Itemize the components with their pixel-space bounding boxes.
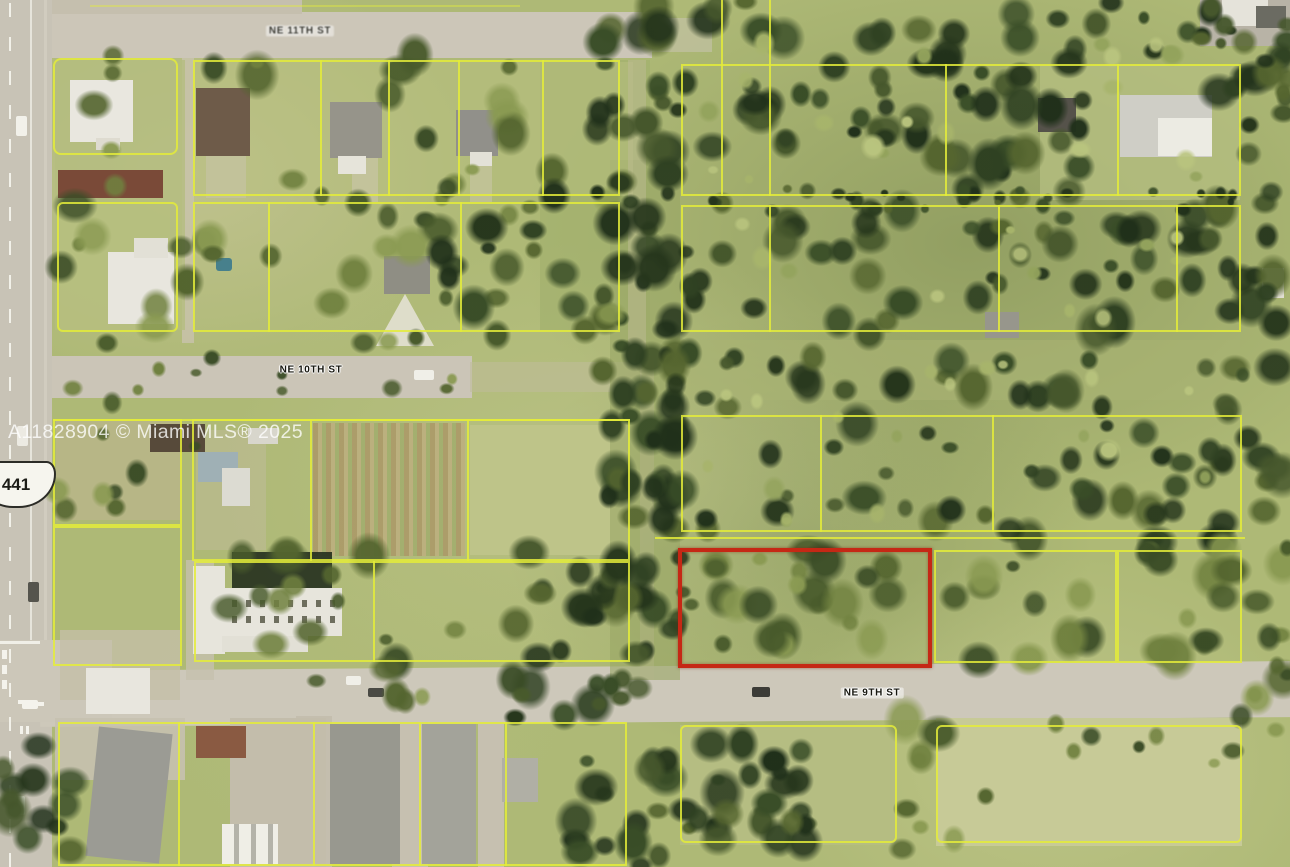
road-marking (2, 680, 7, 689)
street-label-ne-9th-st: NE 9TH ST (841, 688, 904, 699)
road-marking (2, 665, 7, 674)
road-marking (30, 0, 32, 640)
parcel-line (992, 415, 994, 532)
tree-blob (609, 689, 634, 707)
parcel-line (820, 415, 822, 532)
tree-blob (752, 30, 775, 57)
parcel-outline (1117, 550, 1242, 663)
vehicle (16, 116, 27, 136)
tree-blob (95, 332, 119, 353)
tree-blob (944, 376, 957, 392)
tree-blob (901, 14, 937, 45)
vehicle (346, 676, 361, 685)
tree-blob (438, 382, 455, 395)
tree-blob (997, 359, 1009, 370)
tree-blob (644, 429, 665, 451)
road-marking (2, 650, 7, 659)
road-stub-top (52, 0, 302, 14)
vehicle (414, 370, 434, 380)
parcel-line (1117, 64, 1119, 196)
vehicle (22, 700, 38, 709)
tree-blob (101, 391, 122, 415)
parcel-line (373, 561, 375, 662)
parcel-line (419, 722, 421, 866)
tree-blob (1084, 369, 1101, 389)
parcel-outline (681, 205, 1241, 332)
tree-blob (590, 696, 608, 712)
parcel-line (467, 419, 469, 561)
parcel-outline (681, 64, 1241, 196)
parcel-outline (936, 725, 1242, 843)
parcel-line (388, 60, 390, 196)
tree-blob (1266, 721, 1286, 738)
tree-blob (1247, 496, 1282, 526)
tree-blob (906, 738, 937, 774)
parcel-line (310, 419, 312, 561)
tree-blob (997, 0, 1035, 33)
tree-blob (1082, 8, 1111, 40)
tree-blob (1184, 385, 1195, 397)
parcel-outline (680, 725, 897, 843)
tree-blob (510, 686, 533, 704)
road-ne-11th-st (52, 12, 652, 58)
tree-blob (1259, 181, 1284, 203)
parcel-outline (193, 60, 620, 196)
tree-blob (20, 732, 58, 760)
tree-blob (377, 331, 400, 350)
tree-blob (878, 365, 916, 405)
tree-blob (1190, 30, 1212, 48)
tree-blob (349, 331, 378, 355)
tree-blob (1196, 357, 1217, 378)
tree-blob (276, 385, 289, 396)
tree-blob (1253, 348, 1290, 387)
tree-blob (1079, 350, 1099, 371)
tree-blob (911, 819, 929, 835)
vehicle (752, 687, 770, 697)
tree-blob (733, 0, 758, 11)
tree-blob (1045, 9, 1070, 29)
parcel-line (505, 722, 507, 866)
parcel-line (313, 722, 315, 866)
parcel-outline (58, 722, 627, 866)
parcel-line (542, 60, 544, 196)
tree-blob (924, 364, 939, 381)
tree-blob (638, 6, 680, 49)
tree-blob (1230, 28, 1258, 56)
parcel-line (458, 60, 460, 196)
tree-blob (582, 22, 624, 62)
tree-blob (1007, 379, 1033, 411)
parcel-outline (53, 58, 178, 155)
road-marking (44, 0, 47, 640)
tree-blob (750, 393, 764, 411)
parcel-line (769, 205, 771, 332)
tree-blob (719, 388, 732, 402)
parcel-line (268, 202, 270, 332)
parcel-line (90, 5, 520, 7)
parcel-outline (53, 526, 182, 666)
parcel-line (1176, 205, 1178, 332)
subject-parcel-outline (678, 548, 932, 668)
parcel-line (320, 60, 322, 196)
parcel-outline (681, 415, 1242, 532)
tree-blob (103, 173, 128, 199)
tree-blob (799, 341, 827, 373)
aerial-map: NE 11TH STNE 10TH STNE 9TH STA11828904 ©… (0, 0, 1290, 867)
parcel-outline (934, 550, 1117, 663)
parcel-line (655, 537, 1245, 539)
tree-blob (1239, 116, 1259, 135)
tree-blob (1255, 222, 1280, 251)
parcel-line (945, 64, 947, 196)
tree-blob (394, 687, 417, 714)
road-marking (20, 726, 23, 734)
tree-blob (1254, 452, 1290, 483)
parcel-outline (57, 202, 178, 332)
building (86, 668, 150, 714)
tree-blob (1270, 103, 1290, 124)
tree-blob (868, 17, 897, 49)
tree-blob (664, 372, 687, 398)
tree-blob (1214, 37, 1227, 49)
tree-blob (1279, 538, 1290, 557)
vehicle (28, 582, 39, 602)
road-marking (0, 641, 40, 644)
parcel-line (721, 0, 723, 196)
tree-blob (1239, 589, 1275, 615)
tree-blob (1159, 44, 1185, 67)
tree-blob (633, 750, 667, 787)
parcel-outline (193, 202, 620, 332)
parcel-line (460, 202, 462, 332)
tree-blob (621, 337, 650, 372)
parcel-line (998, 205, 1000, 332)
tree-blob (1047, 368, 1085, 413)
street-label-ne-10th-st: NE 10TH ST (280, 365, 343, 376)
street-label-ne-11th-st: NE 11TH ST (266, 26, 334, 37)
parcel-line (769, 0, 771, 196)
tree-blob (1137, 10, 1150, 26)
tree-blob (978, 359, 998, 376)
parcel-line (178, 722, 180, 866)
tree-blob (831, 378, 858, 402)
parcel-outline (194, 561, 630, 662)
tree-blob (634, 379, 659, 407)
mls-watermark: A11828904 © Miami MLS® 2025 (8, 421, 303, 444)
tree-blob (1256, 622, 1282, 652)
tree-blob (1234, 366, 1250, 383)
